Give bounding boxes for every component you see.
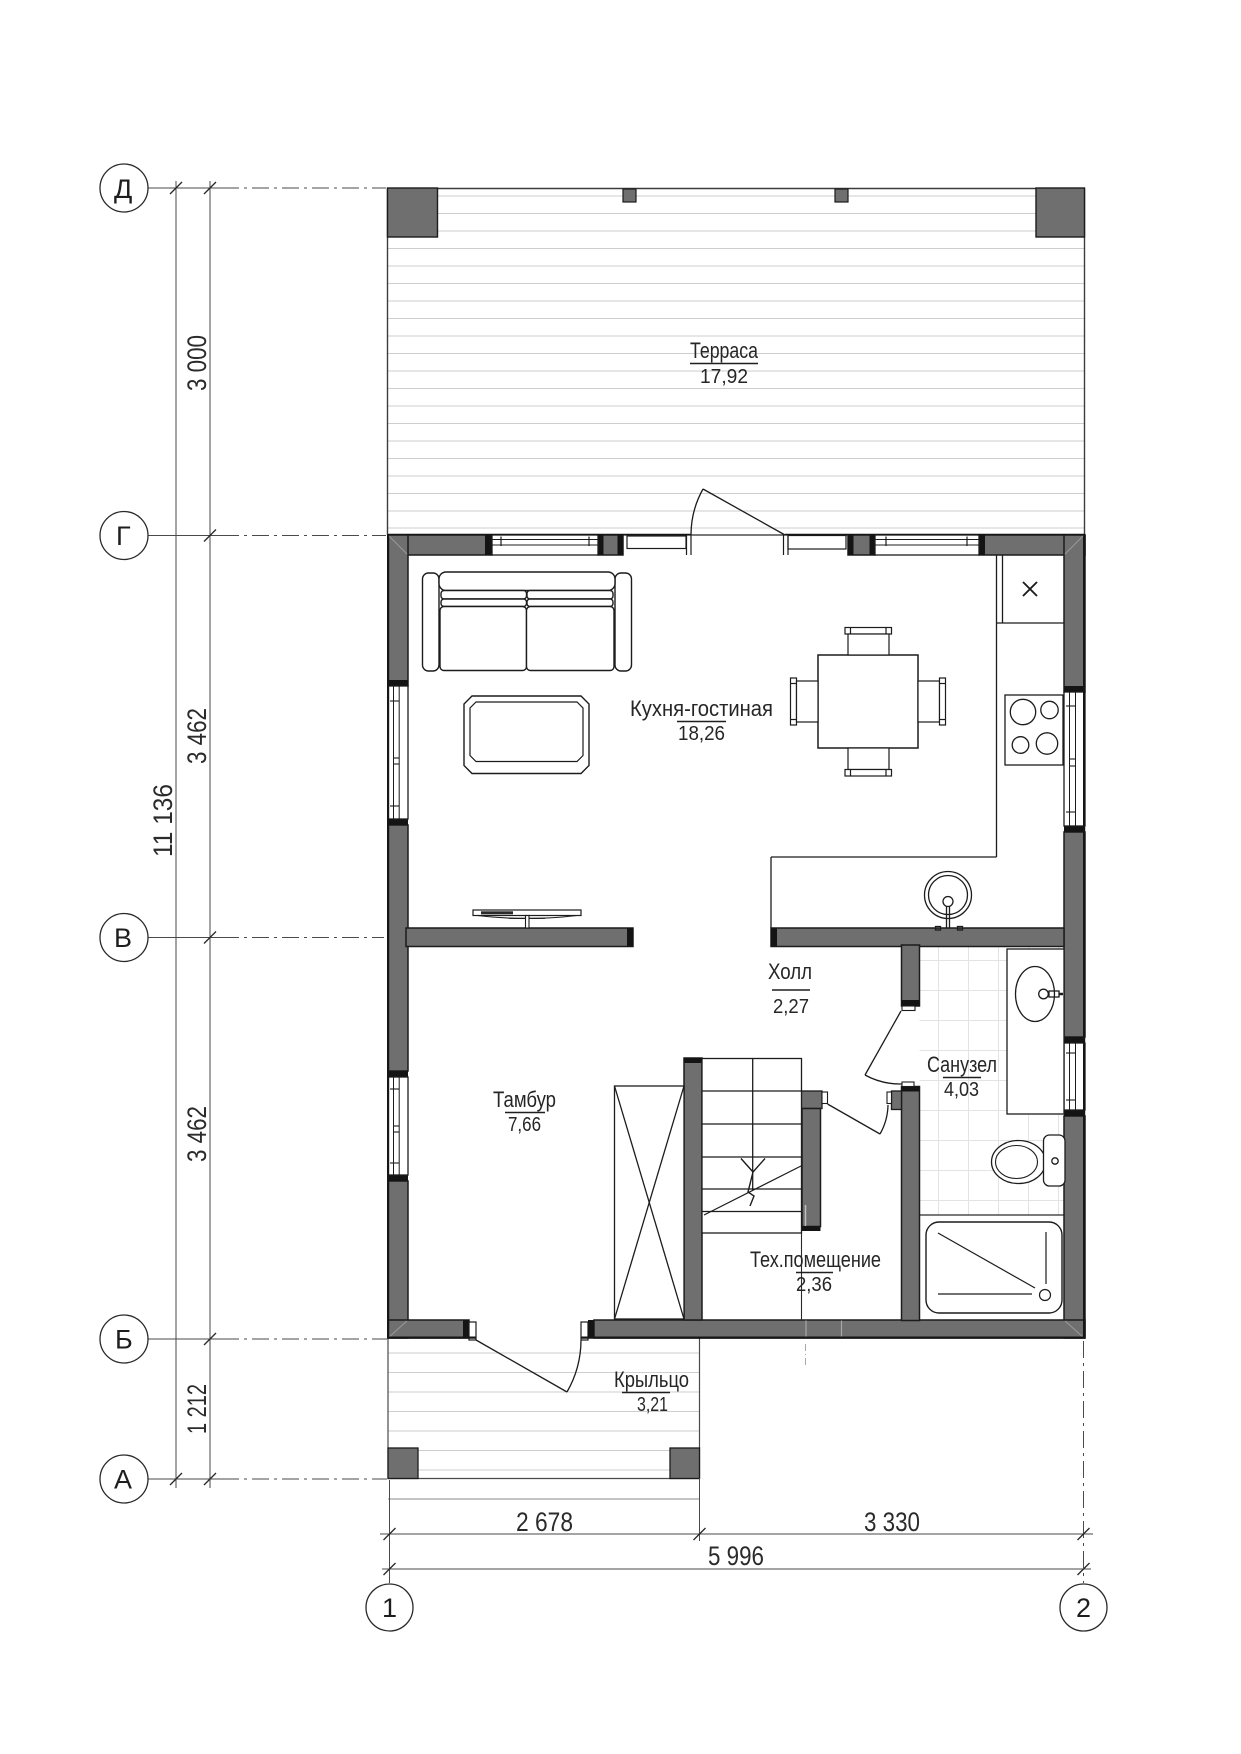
svg-text:2,27: 2,27 xyxy=(773,995,809,1018)
svg-text:Терраса: Терраса xyxy=(690,338,759,363)
svg-text:3 000: 3 000 xyxy=(182,335,212,391)
svg-text:1: 1 xyxy=(382,1593,397,1623)
svg-text:11 136: 11 136 xyxy=(148,784,178,857)
svg-text:2 678: 2 678 xyxy=(516,1507,573,1537)
svg-text:2,36: 2,36 xyxy=(796,1273,832,1296)
svg-text:3 462: 3 462 xyxy=(182,708,212,764)
svg-text:В: В xyxy=(114,923,132,953)
svg-text:Тамбур: Тамбур xyxy=(493,1087,556,1112)
svg-text:Кухня-гостиная: Кухня-гостиная xyxy=(630,696,773,721)
svg-text:4,03: 4,03 xyxy=(944,1078,979,1101)
svg-text:17,92: 17,92 xyxy=(700,365,748,388)
svg-text:3 462: 3 462 xyxy=(182,1106,212,1162)
svg-text:7,66: 7,66 xyxy=(508,1113,541,1136)
svg-text:Г: Г xyxy=(116,521,131,551)
svg-text:Крыльцо: Крыльцо xyxy=(614,1367,689,1392)
svg-text:3,21: 3,21 xyxy=(637,1393,668,1416)
svg-text:3 330: 3 330 xyxy=(864,1507,920,1537)
svg-text:Б: Б xyxy=(115,1325,133,1355)
svg-text:Санузел: Санузел xyxy=(927,1052,997,1077)
svg-text:1 212: 1 212 xyxy=(182,1384,212,1434)
svg-text:5 996: 5 996 xyxy=(708,1541,764,1571)
svg-text:18,26: 18,26 xyxy=(678,722,725,745)
svg-text:Тех.помещение: Тех.помещение xyxy=(750,1247,881,1272)
svg-text:А: А xyxy=(114,1465,132,1495)
svg-text:Д: Д xyxy=(114,174,132,204)
svg-text:2: 2 xyxy=(1076,1593,1091,1623)
svg-text:Холл: Холл xyxy=(768,959,812,984)
